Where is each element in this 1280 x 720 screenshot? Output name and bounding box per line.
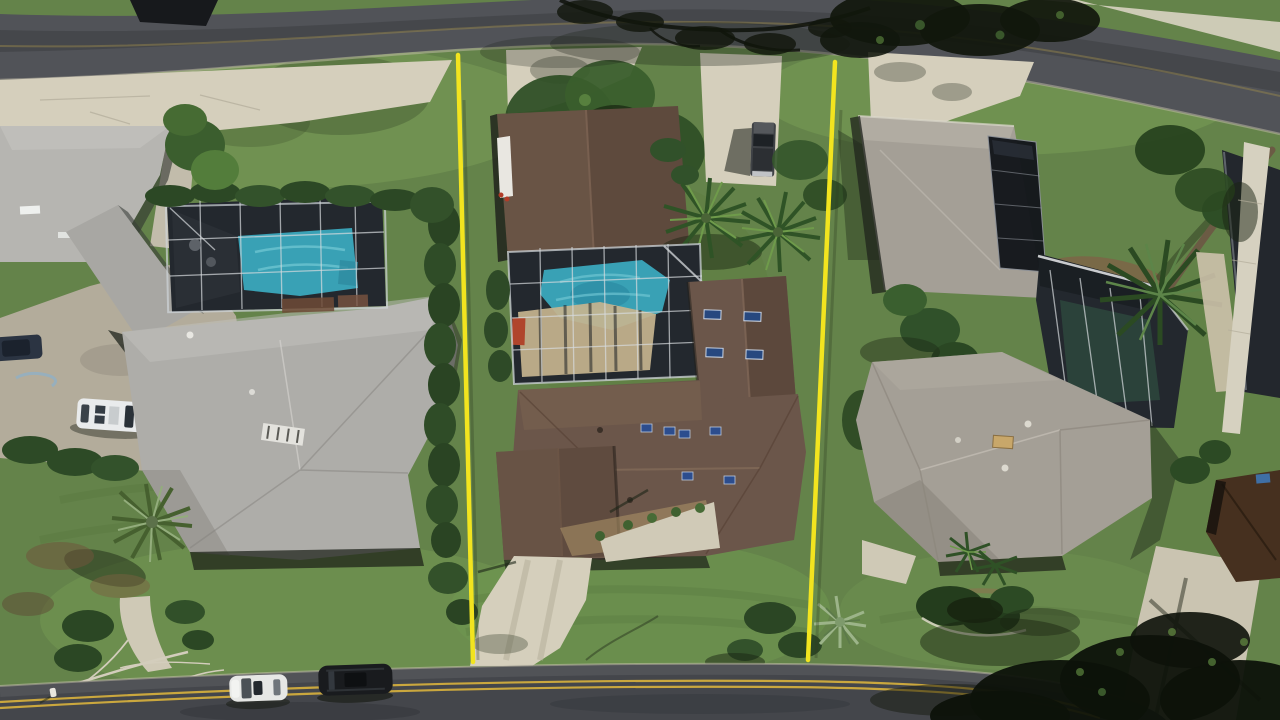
aerial-photo: Curved street along the top Left home - …: [0, 0, 1280, 720]
chimney: [993, 435, 1014, 448]
blue-tarp: [1256, 473, 1271, 483]
center-east-wing-roof: [688, 276, 796, 408]
skylight: [20, 205, 40, 214]
dark-car: [0, 334, 43, 361]
aerial-photo-canvas: Curved street along the top Left home - …: [0, 0, 1280, 720]
right-upper-roof: Rooftop solar panel array: [850, 116, 1046, 298]
white-car: White car parked on street: [225, 674, 290, 710]
rooftop-across-street: [130, 0, 218, 26]
red-pool-item: [512, 318, 526, 345]
center-garage-roof: [490, 106, 690, 262]
left-pool-enclosure: Screened swimming pool of left home: [166, 196, 387, 313]
black-suv: Black SUV parked on street: [316, 663, 393, 704]
center-pool-enclosure: Screened swimming pool of center home: [484, 244, 704, 384]
planter-boxes: [282, 297, 334, 313]
